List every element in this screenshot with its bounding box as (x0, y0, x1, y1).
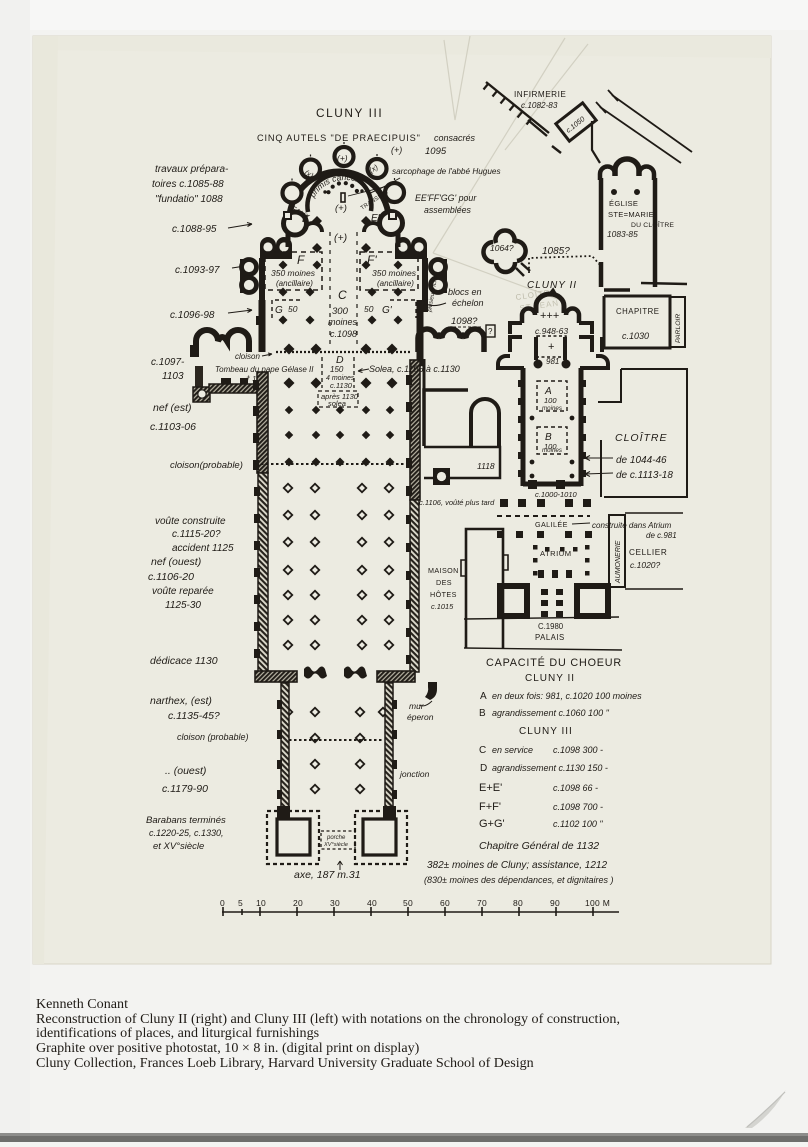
svg-text:30: 30 (330, 898, 340, 908)
svg-text:c.1098 66 -: c.1098 66 - (553, 783, 598, 793)
svg-text:cloison: cloison (235, 352, 260, 361)
svg-text:(+): (+) (337, 153, 348, 163)
svg-text:Barabans terminés: Barabans terminés (146, 815, 226, 826)
svg-text:c.1115-20?: c.1115-20? (172, 529, 221, 540)
svg-text:c.1096-98: c.1096-98 (170, 310, 215, 321)
svg-text:narthex, (est): narthex, (est) (150, 695, 212, 707)
svg-text:CELLIER: CELLIER (629, 548, 667, 557)
svg-text:DES: DES (436, 578, 452, 587)
svg-text:C.1980: C.1980 (538, 622, 564, 631)
svg-text:CLUNY III: CLUNY III (316, 106, 383, 120)
svg-text:(+): (+) (335, 203, 347, 214)
svg-text:de c.981: de c.981 (646, 531, 677, 540)
svg-text:nef (est): nef (est) (153, 402, 192, 414)
svg-text:ÉGLISE: ÉGLISE (609, 199, 638, 208)
svg-text:CLOÎTRE: CLOÎTRE (615, 431, 668, 444)
svg-text:c.1088-95: c.1088-95 (172, 224, 217, 235)
svg-text:PARLOIR: PARLOIR (675, 314, 682, 343)
svg-text:c.1097-: c.1097- (151, 357, 185, 368)
svg-text:50: 50 (288, 304, 298, 314)
svg-text:20: 20 (293, 898, 303, 908)
svg-text:1085?: 1085? (542, 246, 570, 257)
svg-text:E+E': E+E' (479, 782, 502, 794)
svg-text:80: 80 (513, 898, 523, 908)
svg-text:éperon: éperon (407, 712, 434, 722)
svg-text:350 moines: 350 moines (271, 268, 316, 278)
svg-text:?: ? (488, 327, 493, 336)
svg-text:c.1106-20: c.1106-20 (148, 571, 194, 583)
svg-text:solea: solea (328, 399, 346, 408)
svg-text:(ancillaire): (ancillaire) (377, 279, 414, 288)
svg-text:blocs en: blocs en (448, 287, 482, 297)
svg-text:CLUNY II: CLUNY II (525, 673, 575, 684)
svg-text:c.1098: c.1098 (330, 329, 357, 339)
svg-text:DU CLOÎTRE: DU CLOÎTRE (631, 220, 674, 229)
svg-text:981: 981 (546, 357, 559, 366)
svg-text:identifications of places, and: identifications of places, and liturgica… (36, 1025, 319, 1041)
svg-text:en service: en service (492, 745, 533, 755)
svg-text:agrandissement c.1130 150 -: agrandissement c.1130 150 - (492, 763, 608, 773)
svg-text:1098?: 1098? (451, 316, 478, 327)
svg-text:Graphite over positive photost: Graphite over positive photostat, 10 × 8… (36, 1040, 420, 1056)
svg-text:+++: +++ (540, 310, 559, 322)
svg-text:(+): (+) (391, 145, 402, 155)
svg-text:en deux fois: 981, c.1020 10: en deux fois: 981, c.1020 100 moines (492, 691, 642, 701)
svg-text:382± moines de Cluny; assistan: 382± moines de Cluny; assistance, 1212 (427, 860, 607, 871)
svg-text:1064?: 1064? (490, 243, 514, 253)
svg-text:1103: 1103 (162, 371, 184, 382)
svg-text:300: 300 (332, 306, 349, 317)
svg-text:c.1098 700 -: c.1098 700 - (553, 802, 603, 812)
svg-text:F+F': F+F' (479, 801, 501, 813)
svg-text:CLUNY III: CLUNY III (519, 726, 573, 737)
svg-text:c.1179-90: c.1179-90 (162, 783, 208, 795)
svg-text:1125-30: 1125-30 (165, 600, 201, 611)
svg-text:STE=MARIE: STE=MARIE (608, 210, 654, 219)
svg-text:c.948-63: c.948-63 (535, 326, 568, 336)
svg-text:"fundatio" 1088: "fundatio" 1088 (155, 194, 223, 205)
svg-text:D: D (480, 763, 487, 774)
svg-text:0: 0 (220, 898, 225, 908)
svg-text:cloison (probable): cloison (probable) (177, 732, 249, 742)
svg-text:Chapitre Général de 1132: Chapitre Général de 1132 (479, 840, 599, 852)
svg-text:G: G (275, 305, 283, 316)
svg-text:et XV°siècle: et XV°siècle (153, 841, 204, 852)
svg-text:travaux prépara-: travaux prépara- (155, 164, 229, 175)
svg-text:moines: moines (542, 405, 562, 412)
svg-text:90: 90 (550, 898, 560, 908)
svg-text:construite dans Atrium: construite dans Atrium (592, 521, 672, 530)
svg-text:de 1044-46: de 1044-46 (616, 455, 667, 466)
svg-text:c.1015: c.1015 (431, 602, 454, 611)
svg-text:G+G': G+G' (479, 818, 505, 830)
svg-text:A: A (480, 691, 487, 702)
svg-text:voûte reparée: voûte reparée (152, 586, 214, 597)
svg-text:MAISON: MAISON (428, 566, 459, 575)
svg-text:XV°siècle: XV°siècle (323, 842, 348, 848)
svg-text:EE'FF'GG' pour: EE'FF'GG' pour (415, 193, 477, 203)
svg-text:50: 50 (364, 304, 374, 314)
svg-text:Solea, c.1106 à c.1130: Solea, c.1106 à c.1130 (369, 364, 460, 374)
svg-text:40: 40 (367, 898, 377, 908)
svg-text:assemblées: assemblées (424, 205, 472, 215)
svg-text:moines: moines (542, 447, 562, 454)
svg-text:c.1020?: c.1020? (630, 560, 661, 570)
svg-text:c.1030: c.1030 (622, 331, 649, 341)
svg-text:CHAPITRE: CHAPITRE (616, 307, 659, 316)
svg-text:c.1093-97: c.1093-97 (175, 265, 220, 276)
svg-text:jonction: jonction (399, 769, 430, 779)
svg-text:GALILÉE: GALILÉE (535, 520, 568, 529)
svg-text:150: 150 (330, 365, 344, 374)
svg-text:PALAIS: PALAIS (535, 633, 565, 642)
svg-text:moines: moines (328, 317, 358, 327)
svg-text:agrandissement c.1060 100 ": agrandissement c.1060 100 " (492, 708, 610, 718)
svg-text:(830± moines des dépendances,: (830± moines des dépendances, et dignita… (424, 875, 614, 885)
svg-text:accident 1125: accident 1125 (172, 543, 234, 554)
svg-text:(ancillaire): (ancillaire) (276, 279, 313, 288)
svg-text:c.1102 100 ": c.1102 100 " (553, 819, 603, 829)
svg-text:100 M: 100 M (585, 898, 610, 908)
svg-text:cloison(probable): cloison(probable) (170, 460, 243, 471)
svg-text:50: 50 (403, 898, 413, 908)
svg-text:c.1082-83: c.1082-83 (521, 101, 558, 110)
svg-text:C: C (479, 745, 486, 756)
svg-text:c.1130: c.1130 (330, 381, 353, 390)
svg-text:ATRIUM: ATRIUM (540, 549, 572, 558)
svg-text:AUMONERIE: AUMONERIE (615, 540, 622, 584)
svg-text:c.1098 300 -: c.1098 300 - (553, 745, 603, 755)
svg-text:HÔTES: HÔTES (430, 590, 457, 599)
svg-text:350 moines: 350 moines (372, 268, 417, 278)
svg-text:consacrés: consacrés (434, 133, 476, 143)
svg-text:5: 5 (238, 898, 243, 908)
svg-text:voûte construite: voûte construite (155, 516, 226, 527)
svg-text:échelon: échelon (452, 298, 484, 308)
svg-text:Kenneth Conant: Kenneth Conant (36, 996, 128, 1012)
svg-text:c.1000-1010: c.1000-1010 (535, 490, 578, 499)
svg-text:B: B (479, 708, 486, 719)
svg-text:Cluny Collection, Frances Loeb: Cluny Collection, Frances Loeb Library, … (36, 1055, 534, 1071)
svg-text:F: F (297, 253, 305, 267)
svg-text:CINQ AUTELS "DE PRAECIPUIS": CINQ AUTELS "DE PRAECIPUIS" (257, 133, 421, 143)
svg-text:1095: 1095 (425, 146, 447, 157)
svg-text:porche: porche (326, 835, 346, 841)
svg-text:INFIRMERIE: INFIRMERIE (514, 90, 566, 99)
svg-text:de c.1113-18: de c.1113-18 (616, 470, 673, 481)
svg-text:nef (ouest): nef (ouest) (151, 556, 201, 568)
svg-text:60: 60 (440, 898, 450, 908)
svg-text:CAPACITÉ DU CHOEUR: CAPACITÉ DU CHOEUR (486, 656, 622, 669)
svg-text:axe, 187 m.31: axe, 187 m.31 (294, 869, 361, 881)
svg-text:c.1106, voûté plus tard: c.1106, voûté plus tard (419, 498, 495, 507)
svg-text:(+): (+) (334, 232, 347, 244)
svg-text:dédicace 1130: dédicace 1130 (150, 655, 218, 667)
svg-text:C: C (338, 288, 347, 302)
svg-text:100: 100 (544, 396, 557, 405)
svg-text:c.1220-25, c.1330,: c.1220-25, c.1330, (149, 828, 224, 838)
svg-text:c.1135-45?: c.1135-45? (168, 710, 220, 722)
svg-text:sarcophage de l'abbé Hugues: sarcophage de l'abbé Hugues (392, 167, 501, 176)
svg-text:+: + (548, 341, 554, 353)
svg-text:1083-85: 1083-85 (607, 229, 638, 239)
svg-text:10: 10 (256, 898, 266, 908)
svg-text:G': G' (382, 305, 393, 316)
svg-text:70: 70 (477, 898, 487, 908)
svg-text:toires c.1085-88: toires c.1085-88 (152, 179, 224, 190)
svg-text:c.1103-06: c.1103-06 (150, 421, 196, 433)
svg-text:1118: 1118 (477, 461, 495, 471)
svg-text:.. (ouest): .. (ouest) (165, 765, 206, 777)
